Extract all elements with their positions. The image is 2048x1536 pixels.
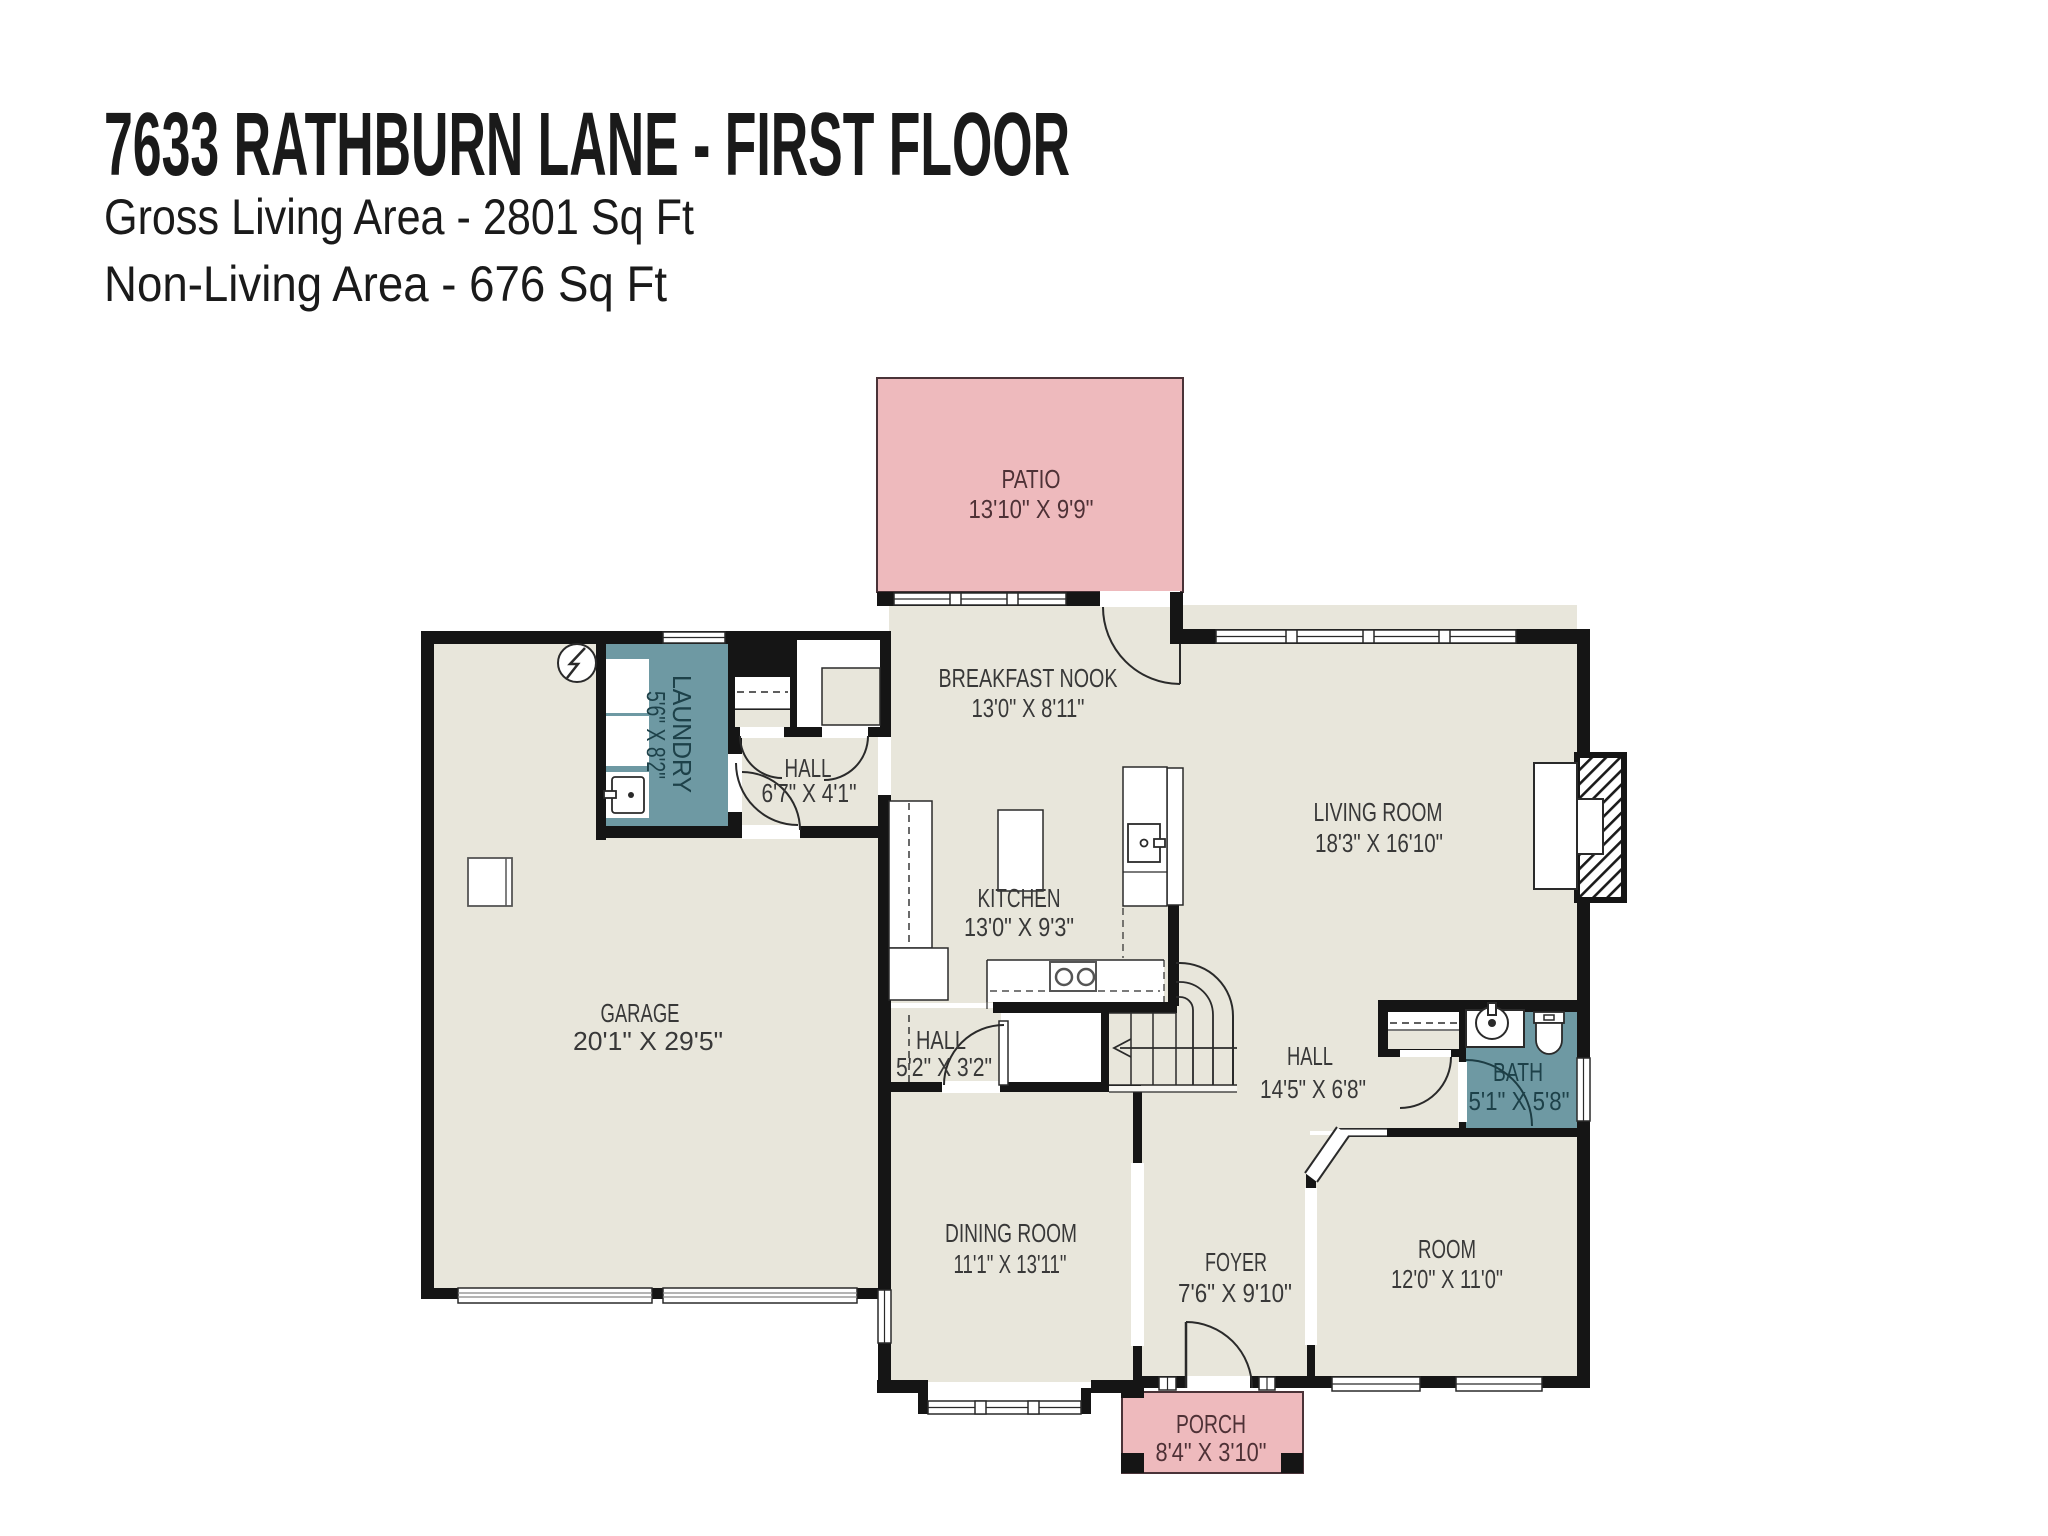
svg-text:LIVING ROOM: LIVING ROOM (1314, 797, 1443, 827)
svg-text:12'0" X 11'0": 12'0" X 11'0" (1391, 1264, 1503, 1294)
svg-text:13'0" X 8'11": 13'0" X 8'11" (972, 693, 1085, 723)
svg-text:BREAKFAST NOOK: BREAKFAST NOOK (939, 663, 1118, 693)
svg-text:5'1" X 5'8": 5'1" X 5'8" (1469, 1086, 1570, 1116)
svg-text:5'2" X 3'2": 5'2" X 3'2" (896, 1052, 992, 1082)
svg-text:20'1" X 29'5": 20'1" X 29'5" (573, 1026, 723, 1056)
svg-text:Gross Living Area - 2801 Sq Ft: Gross Living Area - 2801 Sq Ft (104, 189, 694, 245)
svg-text:8'4" X 3'10": 8'4" X 3'10" (1156, 1437, 1267, 1467)
svg-text:11'1" X 13'11": 11'1" X 13'11" (954, 1249, 1067, 1279)
svg-text:6'7" X 4'1": 6'7" X 4'1" (762, 778, 857, 808)
svg-text:13'0" X 9'3": 13'0" X 9'3" (964, 912, 1074, 942)
svg-text:7'6" X 9'10": 7'6" X 9'10" (1178, 1278, 1292, 1308)
svg-text:13'10" X 9'9": 13'10" X 9'9" (969, 494, 1094, 524)
svg-text:5'6" X 8'2": 5'6" X 8'2" (641, 691, 671, 779)
svg-text:18'3" X 16'10": 18'3" X 16'10" (1315, 828, 1443, 858)
svg-text:7633 RATHBURN LANE - FIRST FLO: 7633 RATHBURN LANE - FIRST FLOOR (104, 95, 1070, 195)
svg-text:DINING ROOM: DINING ROOM (945, 1218, 1077, 1248)
svg-text:BATH: BATH (1493, 1057, 1543, 1087)
svg-text:KITCHEN: KITCHEN (978, 883, 1061, 913)
svg-text:14'5" X 6'8": 14'5" X 6'8" (1260, 1074, 1366, 1104)
svg-text:GARAGE: GARAGE (601, 998, 680, 1028)
svg-text:FOYER: FOYER (1205, 1247, 1267, 1277)
svg-text:ROOM: ROOM (1418, 1234, 1476, 1264)
svg-text:PATIO: PATIO (1002, 464, 1061, 494)
svg-text:PORCH: PORCH (1176, 1409, 1246, 1439)
svg-text:Non-Living Area - 676 Sq Ft: Non-Living Area - 676 Sq Ft (104, 256, 667, 312)
svg-text:HALL: HALL (916, 1025, 966, 1055)
svg-text:HALL: HALL (1287, 1041, 1333, 1071)
